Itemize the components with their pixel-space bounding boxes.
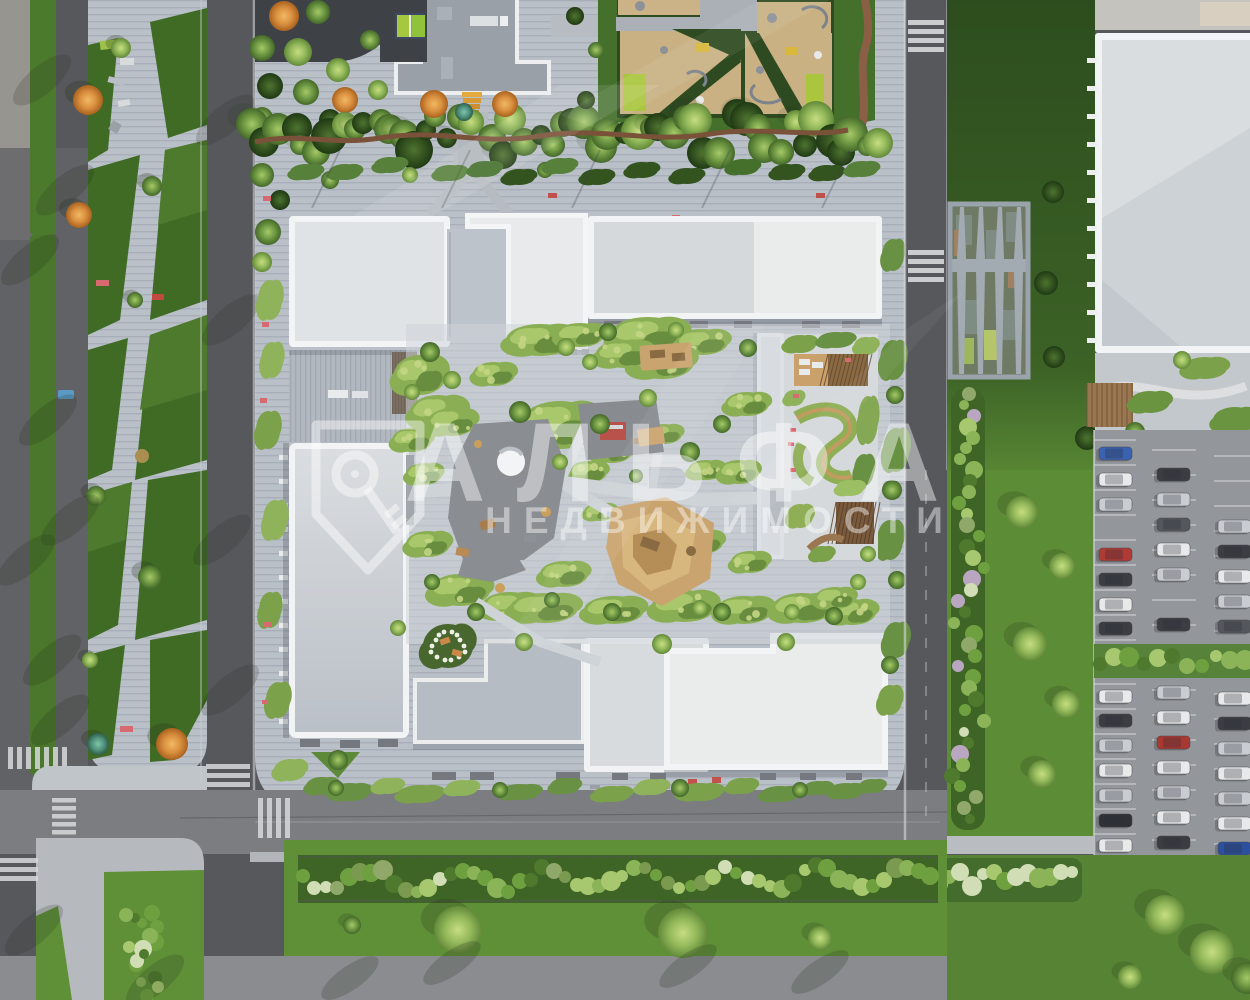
svg-text:НЕДВИЖИМОСТИ: НЕДВИЖИМОСТИ	[485, 500, 955, 541]
